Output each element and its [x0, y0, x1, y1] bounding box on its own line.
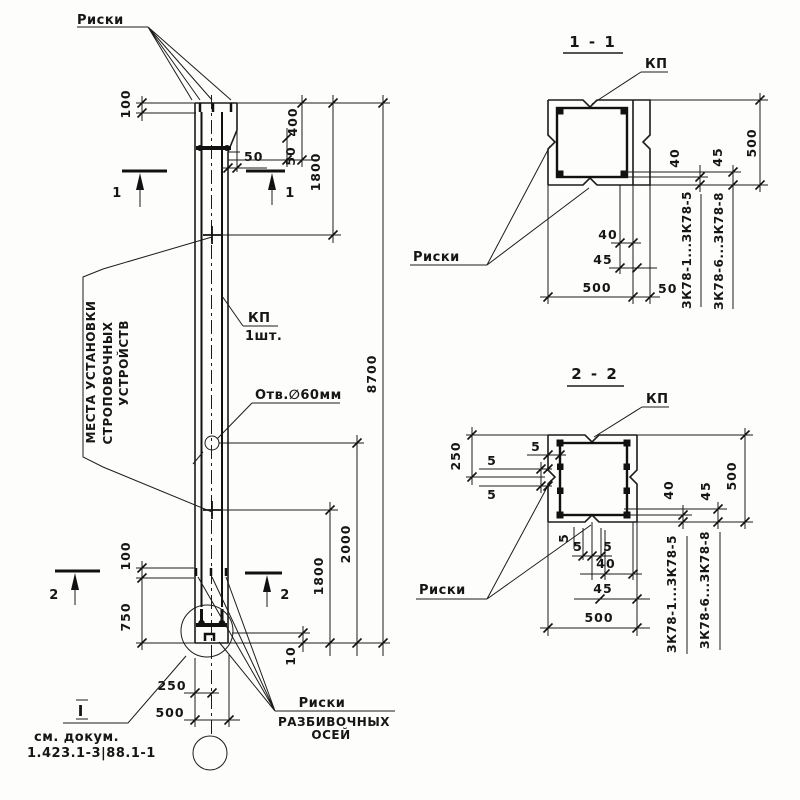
section1-dim-45-right: 45 [710, 147, 725, 166]
bottom-axis-mark [205, 634, 214, 641]
section2-dim-5-left-a: 5 [531, 439, 541, 454]
risks-top-label: Риски [77, 13, 124, 28]
section2-stirrup [560, 443, 627, 515]
dim-250: 250 [157, 678, 186, 693]
see-doc-line1: см. докум. [34, 730, 119, 745]
section1-dim-lines [540, 93, 768, 304]
cut-mark-2-left: 2 [49, 571, 100, 605]
section2-dim-5-bottom-c: 5 [603, 539, 613, 554]
kp-label: КП [248, 311, 271, 326]
section1-dim-40-bottom: 40 [598, 227, 617, 242]
section2-risks-label: Риски [419, 583, 466, 598]
section1-dim-40-right: 40 [667, 148, 682, 167]
section1-dim-500-bottom: 500 [582, 280, 611, 295]
cut-mark-2-right: 2 [245, 573, 290, 607]
section1-risks-leaders [410, 146, 589, 265]
axes-risks-line3: ОСЕЙ [311, 727, 350, 742]
section2-dim-40-bottom: 40 [596, 556, 615, 571]
axes-risks-line2: РАЗБИВОЧНЫХ [278, 715, 390, 729]
lifting-note-line1: МЕСТА УСТАНОВКИ [84, 301, 98, 444]
dim-50-horiz: 50 [244, 149, 263, 164]
dim-1800-top: 1800 [308, 153, 323, 192]
section2-kp-leader [594, 407, 669, 437]
lifting-note-line2: СТРОПОВОЧНЫХ [101, 321, 115, 444]
cut-label-1: 1 [112, 186, 122, 201]
anchor-dot [197, 145, 203, 151]
section1-risks-label: Риски [413, 250, 460, 265]
section1-dim-50-bottom: 50 [658, 281, 677, 296]
section-2-2: 2 - 2 КП Риски [416, 365, 753, 654]
section2-dim-5-left-b: 5 [487, 453, 497, 468]
section2-dim-45-right: 45 [698, 481, 713, 500]
section1-dim-500-right: 500 [744, 128, 759, 157]
section2-mark-b: ЗК78-6...ЗК78-8 [698, 531, 712, 649]
axis-circle [193, 736, 227, 770]
cut-label-1: 1 [285, 186, 295, 201]
hole-label: Отв.∅60мм [255, 388, 342, 403]
cut-mark-1-left: 1 [112, 171, 167, 207]
lifting-cross-lower [203, 501, 221, 519]
dimension-lines [142, 95, 383, 720]
dim-750: 750 [118, 602, 133, 631]
anchor-dot [224, 145, 230, 151]
cut-label-2: 2 [280, 588, 290, 603]
detail-mark-label: I [78, 702, 86, 720]
section2-dim-40-right: 40 [661, 480, 676, 499]
anchor-dot [198, 620, 204, 626]
section2-mark-a: ЗК78-1...ЗК78-5 [665, 535, 679, 653]
cut-label-2: 2 [49, 588, 59, 603]
section2-title: 2 - 2 [571, 365, 619, 383]
section2-dim-250: 250 [448, 441, 463, 470]
section1-mark-b: ЗК78-6...ЗК78-8 [712, 192, 726, 310]
column-drawing: 1 1 2 2 [0, 0, 800, 800]
axes-risks-line1: Риски [299, 696, 346, 711]
risks-top-leaders [77, 27, 231, 100]
section1-dim-45-bottom: 45 [593, 252, 612, 267]
section2-outline [548, 435, 637, 522]
section1-title: 1 - 1 [569, 33, 617, 51]
section1-mark-a: ЗК78-1...ЗК78-5 [680, 191, 694, 309]
section1-stirrup [557, 108, 627, 177]
dim-1800-bottom: 1800 [311, 557, 326, 596]
section2-dim-500-bottom: 500 [584, 610, 613, 625]
section2-kp-label: КП [646, 392, 669, 407]
dim-100-bottom: 100 [118, 541, 133, 570]
section1-kp-label: КП [645, 57, 668, 72]
lifting-cross-upper [203, 226, 221, 244]
main-dimensions: 100 400 50 50 1800 8700 2000 1800 100 75… [118, 89, 390, 727]
section2-dim-5-bottom-b: 5 [573, 539, 583, 554]
section2-dim-5-left-c: 5 [487, 487, 497, 502]
dimension-ticks [138, 99, 388, 725]
dim-8700: 8700 [364, 355, 379, 394]
section-1-1: 1 - 1 КП Риски [410, 33, 768, 310]
hole-leader [217, 403, 340, 439]
cut-mark-1-right: 1 [246, 171, 295, 205]
dim-500: 500 [155, 705, 184, 720]
lifting-note-line3: УСТРОЙСТВ [116, 320, 131, 406]
see-doc-line2: 1.423.1-3|88.1-1 [27, 746, 156, 761]
section1-dim-ticks [544, 96, 765, 302]
section2-dim-5-bottom-a: 5 [556, 533, 571, 543]
section2-dim-45-bottom: 45 [593, 581, 612, 596]
section2-rebar-dots [557, 440, 631, 519]
dim-100-top: 100 [118, 89, 133, 118]
drawing-sheet: 1 1 2 2 [0, 0, 800, 800]
dim-10: 10 [283, 646, 298, 665]
column-front-view [181, 95, 240, 770]
section1-rebar-dots [557, 108, 628, 178]
dim-400: 400 [285, 107, 300, 136]
top-risk-marks [200, 103, 231, 112]
section2-dim-500-right: 500 [724, 461, 739, 490]
dim-50-vert: 50 [283, 146, 298, 165]
dim-2000: 2000 [338, 525, 353, 564]
extension-lines [136, 103, 390, 727]
kp-qty-label: 1шт. [245, 329, 282, 344]
